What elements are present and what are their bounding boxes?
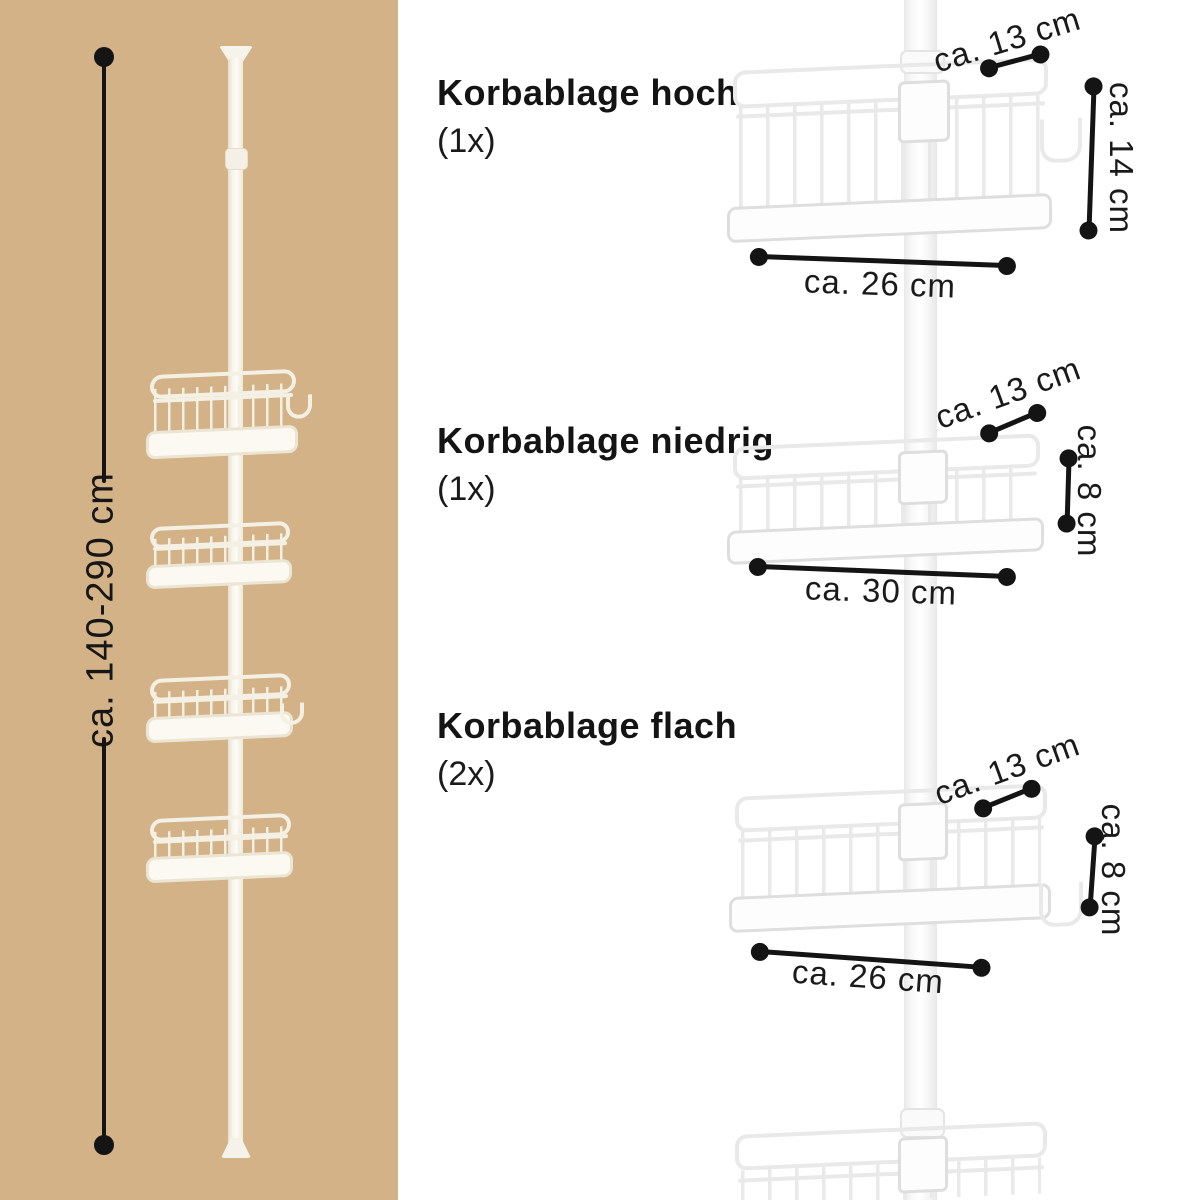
basket-flach-photo — [735, 783, 1047, 937]
section-title: Korbablage niedrig — [437, 420, 774, 462]
basket-partial-bottom — [735, 1121, 1047, 1200]
width-label-1: ca. 26 cm — [803, 262, 956, 305]
height-label-2: ca. 8 cm — [1070, 425, 1108, 558]
basket-hook — [286, 394, 312, 419]
dim-dot — [1085, 77, 1104, 96]
telescopic-pole — [228, 58, 243, 1150]
basket-tray — [146, 851, 293, 883]
pole-bottom-foot — [221, 1138, 251, 1158]
dim-dot — [750, 942, 769, 961]
dim-line-height-lower — [102, 737, 106, 1145]
basket-tray — [146, 425, 298, 460]
product-dimension-diagram: ca. 140-290 cm Korbablage hoch (1x) ca. … — [0, 0, 1200, 1200]
section-korbablage-niedrig: Korbablage niedrig (1x) — [437, 420, 774, 509]
pole-clamp — [898, 79, 950, 143]
pole-clamp — [898, 1136, 948, 1194]
basket-wires — [739, 91, 1042, 210]
section-count: (2x) — [437, 755, 737, 794]
basket-hook — [280, 702, 304, 725]
total-height-label: ca. 140-290 cm — [80, 472, 123, 748]
section-korbablage-hoch: Korbablage hoch (1x) — [437, 72, 739, 161]
pole-telescope-joint — [225, 148, 248, 170]
basket-flach-small-1 — [150, 673, 291, 737]
dim-dot — [1080, 221, 1099, 240]
left-panel: ca. 140-290 cm — [0, 0, 398, 1200]
dim-dot — [750, 247, 769, 266]
basket-niedrig-photo — [733, 433, 1040, 566]
dim-dot — [972, 958, 991, 977]
dim-dot-bottom — [94, 1135, 114, 1155]
dim-dot — [749, 557, 768, 576]
pole-clamp — [898, 449, 948, 505]
height-label-1: ca. 14 cm — [1102, 82, 1140, 234]
basket-tray — [146, 559, 292, 589]
basket-niedrig-small — [150, 521, 290, 583]
section-count: (1x) — [437, 122, 739, 161]
section-count: (1x) — [437, 470, 774, 509]
basket-hook — [1039, 882, 1083, 928]
basket-hoch-small — [150, 369, 296, 455]
section-korbablage-flach: Korbablage flach (2x) — [437, 705, 737, 794]
height-label-3: ca. 8 cm — [1094, 804, 1132, 937]
width-label-2: ca. 30 cm — [804, 569, 957, 612]
dim-line-height-1 — [1086, 85, 1096, 231]
section-title: Korbablage flach — [437, 705, 737, 747]
section-title: Korbablage hoch — [437, 72, 739, 114]
basket-hook — [1040, 118, 1082, 164]
basket-flach-small-2 — [150, 813, 291, 877]
basket-hoch-photo — [733, 57, 1048, 246]
dim-line-height-upper — [102, 57, 106, 483]
dim-dot — [998, 256, 1017, 275]
dim-dot — [998, 567, 1017, 586]
basket-tray — [146, 711, 293, 743]
